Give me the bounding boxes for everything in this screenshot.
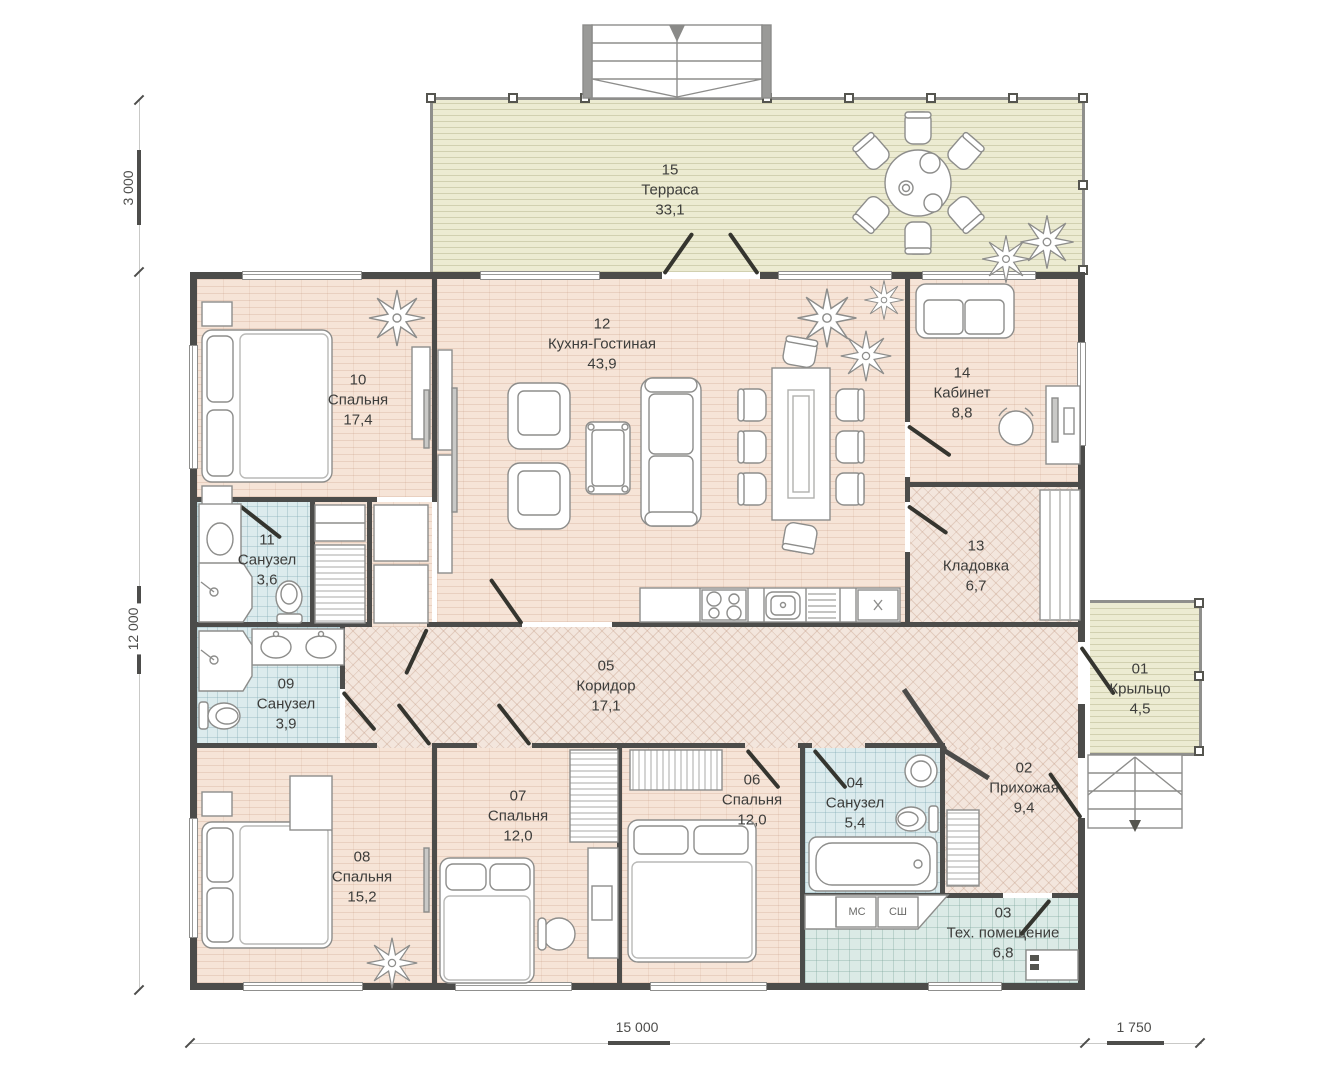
dryer-label: СШ	[889, 906, 907, 918]
bed-room08	[202, 776, 429, 948]
room-number: 02	[989, 758, 1059, 778]
room-number: 10	[328, 370, 388, 390]
room-area: 43,9	[548, 354, 656, 374]
room-name: Прихожая	[989, 778, 1059, 798]
room-area: 17,4	[328, 410, 388, 430]
room-name: Спальня	[332, 867, 392, 887]
room-name: Кладовка	[943, 556, 1009, 576]
room-label-kitchen-living-12: 12 Кухня-Гостиная 43,9	[548, 314, 656, 373]
dimension-terrace-depth: 3 000	[120, 166, 136, 209]
room-number: 01	[1109, 659, 1170, 679]
room-label-office-14: 14 Кабинет 8,8	[933, 363, 990, 422]
room-label-storage-13: 13 Кладовка 6,7	[943, 536, 1009, 595]
room-number: 15	[641, 160, 699, 180]
room-label-bedroom-07: 07 Спальня 12,0	[488, 786, 548, 845]
room-area: 12,0	[488, 826, 548, 846]
dimension-porch-width: 1 750	[1112, 1019, 1155, 1035]
room-area: 12,0	[722, 810, 782, 830]
room-area: 9,4	[989, 798, 1059, 818]
room-label-porch-01: 01 Крыльцо 4,5	[1109, 659, 1170, 718]
plant-icon	[1020, 215, 1073, 268]
room-name: Санузел	[826, 793, 884, 813]
stairs-top	[583, 25, 771, 98]
room-label-corridor-05: 05 Коридор 17,1	[576, 656, 635, 715]
room-number: 12	[548, 314, 656, 334]
plant-icon	[841, 331, 891, 381]
closet-room10	[315, 505, 428, 623]
terrace-table	[852, 112, 986, 254]
dimension-house-width: 15 000	[612, 1019, 663, 1035]
room-area: 4,5	[1109, 699, 1170, 719]
room-label-bedroom-06: 06 Спальня 12,0	[722, 770, 782, 829]
plant-icon	[369, 290, 425, 346]
room-label-bathroom-11: 11 Санузел 3,6	[238, 530, 296, 589]
room-area: 33,1	[641, 200, 699, 220]
room-number: 04	[826, 773, 884, 793]
room-label-bathroom-09: 09 Санузел 3,9	[257, 674, 315, 733]
room-number: 09	[257, 674, 315, 694]
dining-set	[738, 335, 864, 554]
room-number: 08	[332, 847, 392, 867]
dimension-segment	[137, 150, 141, 225]
bed-room07	[440, 750, 618, 983]
room-label-bedroom-08: 08 Спальня 15,2	[332, 847, 392, 906]
room-label-tech-03: 03 Тех. помещение 6,8	[947, 903, 1060, 962]
room-number: 11	[238, 530, 296, 550]
porch-steps	[1088, 755, 1182, 832]
room-name: Кухня-Гостиная	[548, 334, 656, 354]
room-name: Санузел	[257, 694, 315, 714]
storage-shelves	[1040, 490, 1080, 620]
dimension-line-left	[139, 100, 140, 990]
room-area: 17,1	[576, 696, 635, 716]
room-name: Спальня	[488, 806, 548, 826]
room-number: 13	[943, 536, 1009, 556]
room-area: 3,6	[238, 570, 296, 590]
room-number: 06	[722, 770, 782, 790]
room-name: Коридор	[576, 676, 635, 696]
room-name: Крыльцо	[1109, 679, 1170, 699]
hall-wardrobe	[947, 810, 979, 886]
dimension-segment	[608, 1041, 670, 1045]
room-name: Спальня	[722, 790, 782, 810]
room-label-terrace: 15 Терраса 33,1	[641, 160, 699, 219]
living-set	[438, 350, 701, 573]
kitchen-counter	[640, 588, 900, 622]
room-area: 8,8	[933, 403, 990, 423]
room-area: 3,9	[257, 714, 315, 734]
plant-icon	[367, 938, 417, 988]
room-area: 5,4	[826, 813, 884, 833]
room-area: 6,7	[943, 576, 1009, 596]
room-label-bathroom-04: 04 Санузел 5,4	[826, 773, 884, 832]
room-name: Кабинет	[933, 383, 990, 403]
room-name: Спальня	[328, 390, 388, 410]
washer-label: МС	[848, 906, 865, 918]
room-label-hall-02: 02 Прихожая 9,4	[989, 758, 1059, 817]
room-name: Санузел	[238, 550, 296, 570]
room-number: 05	[576, 656, 635, 676]
room-area: 15,2	[332, 887, 392, 907]
floor-plan: 15 Терраса 33,1 10 Спальня 17,4 12 Кухня…	[0, 0, 1335, 1080]
room-number: 07	[488, 786, 548, 806]
room-name: Тех. помещение	[947, 923, 1060, 943]
room-name: Терраса	[641, 180, 699, 200]
dimension-line-bottom	[190, 1043, 1202, 1044]
room-area: 6,8	[947, 943, 1060, 963]
dimension-segment	[1107, 1041, 1164, 1045]
room-number: 14	[933, 363, 990, 383]
plant-icon	[864, 280, 903, 319]
room-number: 03	[947, 903, 1060, 923]
dimension-house-depth: 12 000	[125, 604, 141, 655]
room-label-bedroom-10: 10 Спальня 17,4	[328, 370, 388, 429]
